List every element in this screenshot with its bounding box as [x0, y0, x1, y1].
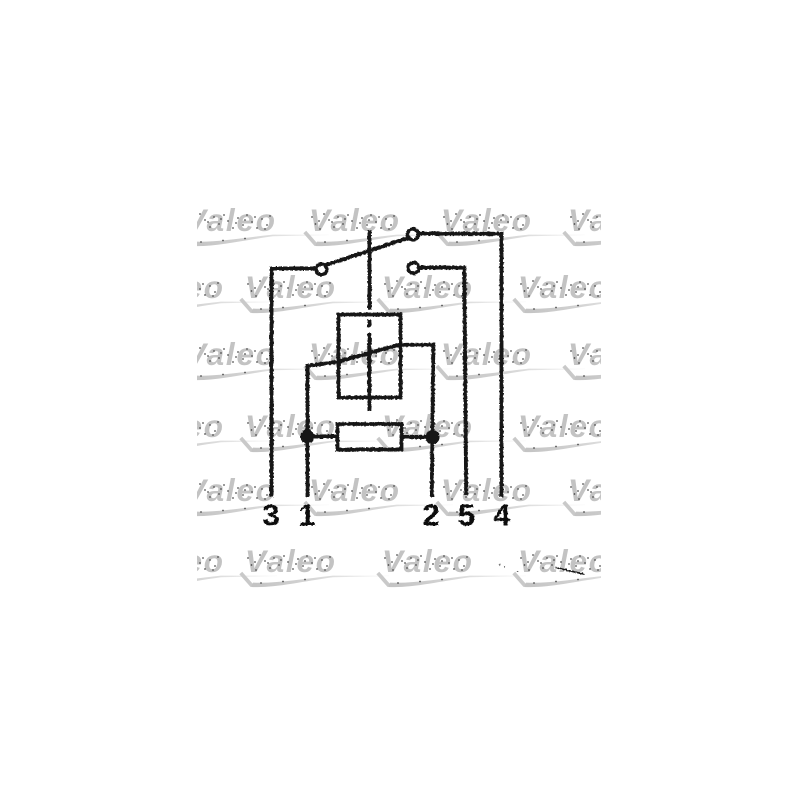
svg-text:1: 1 — [298, 498, 315, 533]
svg-text:5: 5 — [458, 498, 475, 533]
svg-text:2: 2 — [422, 498, 439, 533]
svg-text:3: 3 — [262, 498, 279, 533]
svg-text:4: 4 — [493, 498, 511, 533]
